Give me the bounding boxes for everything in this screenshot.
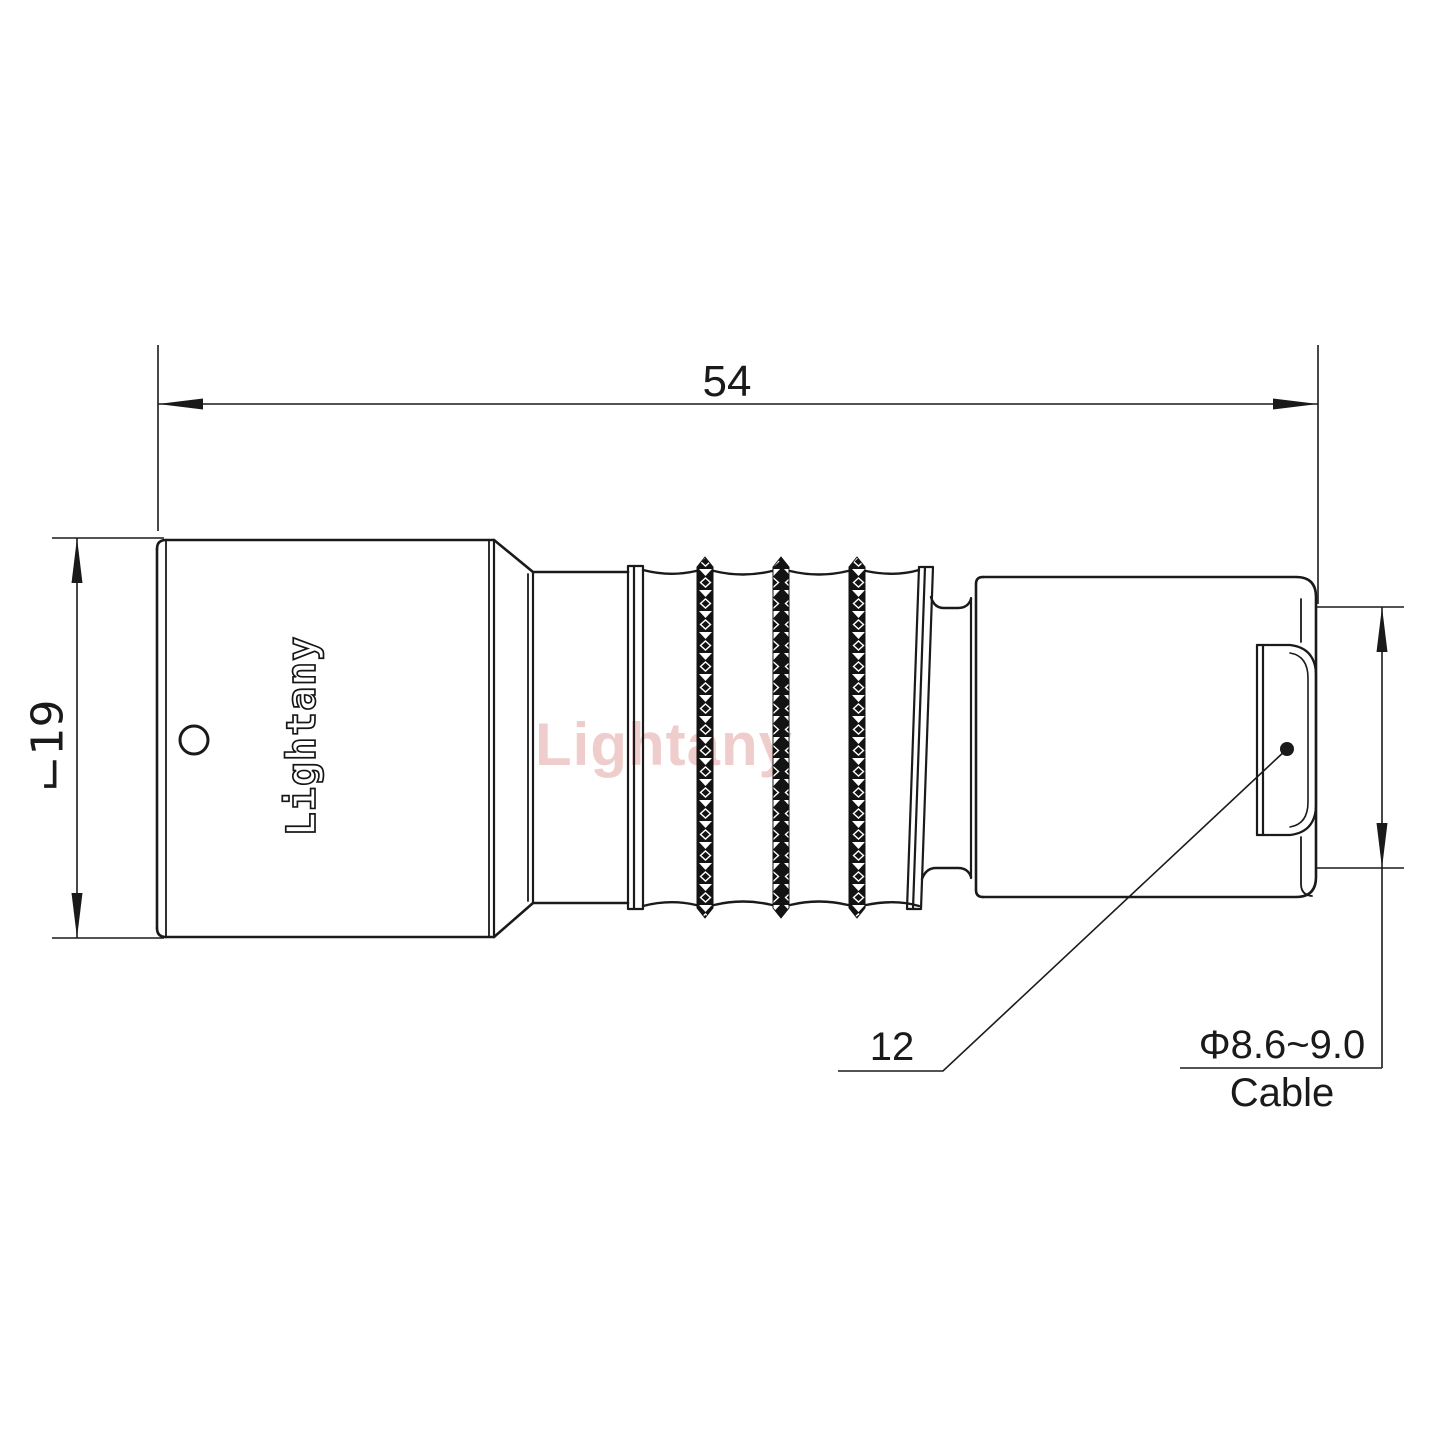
dim-body-diameter-group: ⌙19 (23, 700, 74, 793)
connector-technical-drawing: Lightany (0, 0, 1440, 1440)
dim-nut-size: 12 (870, 1025, 915, 1069)
dim-cable-label: Cable (1230, 1071, 1335, 1115)
watermark: Lightany (535, 711, 793, 778)
body-logo-text: Lightany (279, 636, 325, 837)
dim-overall-length: 54 (703, 357, 752, 406)
knurl-band (697, 557, 713, 918)
knurl-band (849, 557, 865, 918)
dim-cable-diameter: Φ8.6~9.0 (1199, 1023, 1365, 1067)
knurl-band (773, 557, 789, 918)
technical-drawing-page: Lightany (0, 0, 1440, 1440)
dim-body-diameter: ⌙19 (23, 700, 74, 793)
body-logo: Lightany (279, 636, 325, 837)
leader-dot (1280, 742, 1294, 756)
